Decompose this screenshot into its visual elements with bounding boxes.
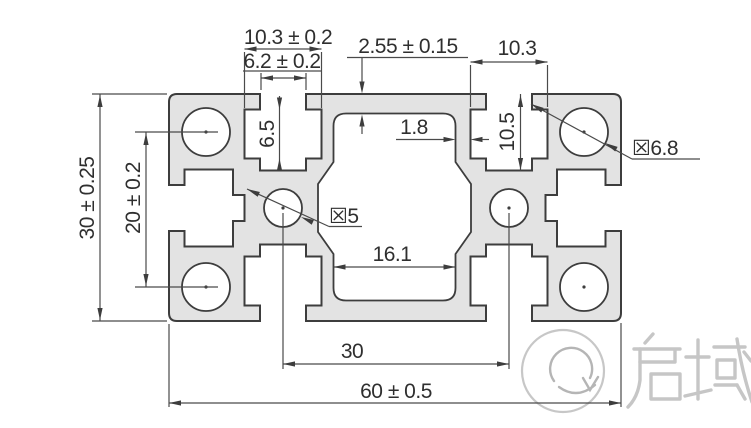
dim-label-top-slot-opening: 6.2 ± 0.2 bbox=[243, 50, 320, 73]
logo-q-swirl bbox=[550, 348, 592, 381]
dim-label-profile-width: 60 ± 0.5 bbox=[360, 380, 432, 403]
dim-label-center-hole-spacing: 30 bbox=[341, 340, 363, 363]
dim-label-corner-face-width: 10.3 bbox=[498, 37, 537, 60]
dim-label-corner-hole-spacing: 20 ± 0.2 bbox=[122, 162, 145, 234]
logo-q-underarc bbox=[559, 385, 595, 393]
logo-characters bbox=[628, 334, 751, 407]
dim-label-profile-height: 30 ± 0.25 bbox=[76, 157, 99, 240]
dim-label-corner-hole-dia: ☒6.8 bbox=[632, 137, 678, 160]
dim-label-wall-thickness: 2.55 ± 0.15 bbox=[358, 35, 457, 58]
brand-logo: 启域 bbox=[522, 330, 751, 423]
dim-label-slot-total-depth: 10.5 bbox=[496, 113, 519, 152]
dim-label-rib-thickness: 1.8 bbox=[400, 116, 428, 139]
dim-slot-total-depth: 10.5 bbox=[496, 94, 523, 171]
drawing-canvas: 启域 30 ± 0.25 20 ± 0.2 10.3 bbox=[0, 0, 751, 428]
dim-top-slot-opening: 6.2 ± 0.2 bbox=[243, 50, 322, 90]
dim-label-center-hole-dia: ☒5 bbox=[329, 205, 359, 228]
dim-label-top-slot-inner-width: 10.3 ± 0.2 bbox=[244, 26, 332, 49]
dim-profile-width: 60 ± 0.5 bbox=[169, 323, 621, 407]
dim-label-center-cavity-width: 16.1 bbox=[373, 243, 412, 266]
technical-drawing: 启域 30 ± 0.25 20 ± 0.2 10.3 bbox=[0, 0, 751, 428]
dim-label-slot-cavity-height: 6.5 bbox=[256, 120, 279, 148]
